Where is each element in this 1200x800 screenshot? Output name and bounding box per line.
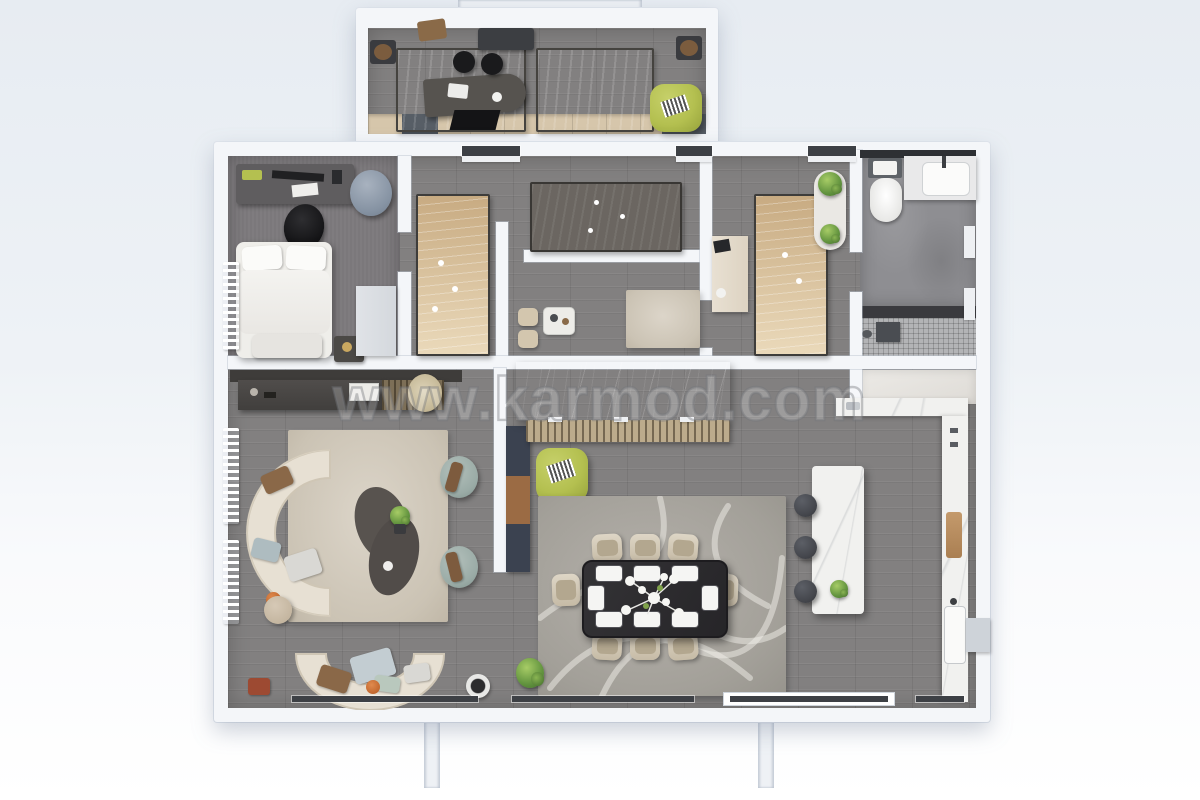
annex-sideboard [478, 28, 534, 50]
bed-decor-dot [796, 278, 802, 284]
annex-desk-lamp [492, 92, 502, 102]
sofa-ball-pillow [366, 680, 380, 694]
kitchen-sink [944, 606, 966, 664]
annex-decor-box [417, 18, 448, 42]
sofa-cushion-gray [403, 662, 431, 683]
bedroom1-wardrobe [356, 286, 396, 356]
window-sill [676, 156, 712, 162]
place-setting [702, 586, 718, 610]
bar-stool [794, 494, 817, 517]
towel-rail [964, 288, 975, 320]
hall-rug [626, 290, 700, 348]
annex-stool [453, 51, 475, 73]
shower-header [858, 306, 976, 318]
rug-speckle [594, 200, 599, 205]
table-centerpiece [616, 572, 692, 624]
bed-decor-dot [782, 252, 788, 258]
living-curtain [223, 540, 239, 624]
plant [820, 224, 840, 244]
bedroom1-curtain [223, 262, 239, 350]
coffee-table-plant [390, 506, 410, 526]
living-pouf [264, 596, 292, 624]
dining-chair [591, 533, 622, 563]
floor-tray [248, 678, 270, 695]
bed-pillow [241, 245, 283, 272]
coffee-table [342, 484, 434, 598]
divider-console-wood [506, 476, 530, 524]
window-strip [916, 696, 964, 702]
window-sill [462, 156, 520, 162]
window [462, 146, 520, 156]
bed-decor-dot [452, 286, 458, 292]
dining-chair [630, 534, 660, 562]
counter-knob [950, 428, 958, 433]
sink-faucet [942, 156, 946, 168]
counter-knob [950, 442, 958, 447]
toilet-bowl [870, 178, 902, 222]
bottom-porch-post-left [424, 722, 440, 788]
nightstand-decor [342, 342, 352, 352]
shower-head [862, 330, 872, 338]
desk-notebook [242, 170, 262, 180]
hall-stool [518, 308, 538, 326]
bar-stool [794, 536, 817, 559]
console-decor [250, 388, 258, 396]
window-strip [292, 696, 478, 702]
annex-speaker-right-cone [680, 40, 698, 56]
sliding-door-glass [512, 696, 694, 702]
plant [818, 172, 842, 196]
hall-table [544, 308, 574, 334]
floor-plant [516, 658, 544, 688]
rug-speckle [620, 214, 625, 219]
hall-table-dish [562, 318, 569, 325]
living-curtain [223, 428, 239, 524]
bedroom2-bed [416, 194, 490, 356]
bedroom2-wall [496, 222, 508, 363]
island-plant [830, 580, 848, 598]
shower-drain [876, 322, 900, 342]
cutting-board [946, 512, 962, 558]
rug-speckle [588, 228, 593, 233]
plant-pot [394, 524, 406, 534]
towel-rail [964, 226, 975, 258]
window [808, 146, 856, 156]
hall-table-dish [550, 314, 558, 322]
window-sill [808, 156, 856, 162]
bed-pillow [285, 245, 326, 271]
watermark: www.karmod.com [295, 364, 905, 434]
exterior-unit [966, 618, 990, 652]
bed-decor-dot [432, 306, 438, 312]
annex-rug-right [536, 48, 654, 132]
console-remote [264, 392, 276, 398]
sliding-door-glass [730, 696, 888, 702]
bathroom-sink [922, 162, 970, 196]
toilet-cistern-lid [873, 161, 897, 175]
side-table [466, 674, 490, 698]
window [676, 146, 712, 156]
place-setting [588, 586, 604, 610]
vanity-decor [716, 288, 726, 298]
bottom-porch-post-right [758, 722, 774, 788]
bar-stool [794, 580, 817, 603]
dining-chair [551, 574, 580, 607]
bed-bench [252, 334, 322, 358]
bedroom1-wall [398, 272, 411, 363]
bed-decor-dot [438, 260, 444, 266]
corridor-rug [530, 182, 682, 252]
hall-stool [518, 330, 538, 348]
annex-speaker-left-cone [374, 44, 392, 60]
bedroom3-wall [700, 156, 712, 300]
annex-floor-mat [450, 110, 501, 130]
dining-chair [667, 533, 699, 563]
floor-plan-render: www.karmod.com [0, 0, 1200, 800]
sink-faucet [950, 598, 957, 605]
annex-desk-papers [447, 83, 468, 99]
bathroom-wall [850, 150, 862, 252]
bedroom1-wall [398, 156, 411, 232]
desk-phone [332, 170, 342, 184]
bed-duvet [238, 270, 330, 334]
annex-stool [481, 53, 503, 75]
bedroom1-pouf [350, 170, 392, 216]
